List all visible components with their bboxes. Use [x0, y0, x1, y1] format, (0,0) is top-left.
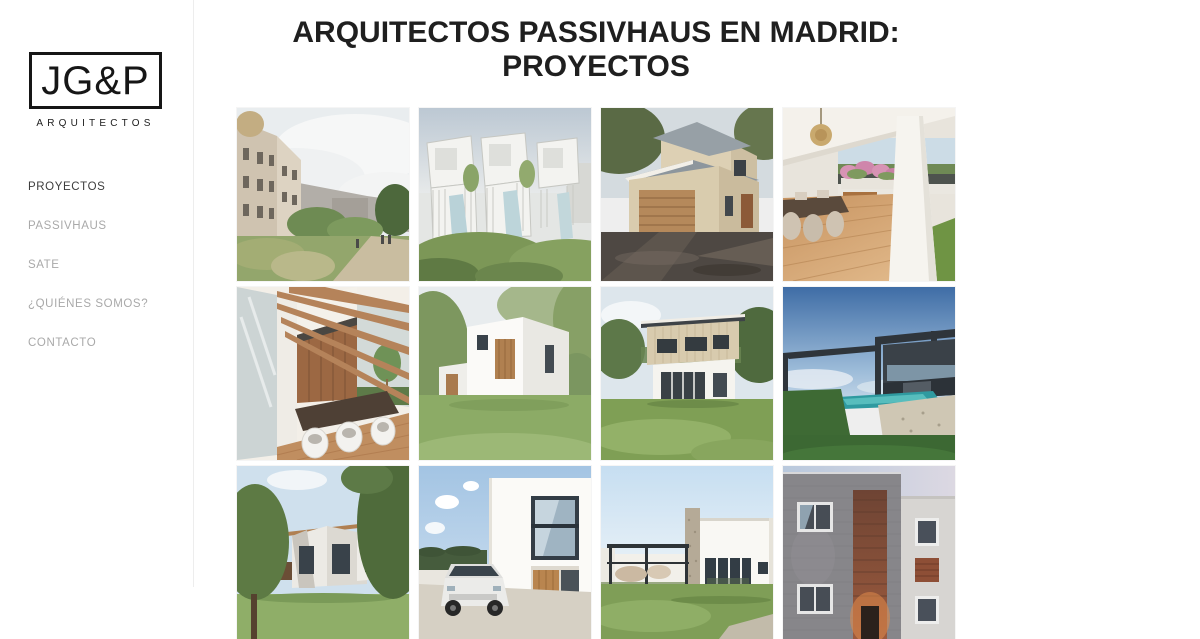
page-title-line1: ARQUITECTOS PASSIVHAUS EN MADRID: — [237, 16, 955, 50]
project-image-9 — [237, 466, 409, 639]
sidebar-item-quienes-somos[interactable]: ¿QUIÉNES SOMOS? — [28, 298, 193, 310]
project-image-12 — [783, 466, 955, 639]
project-thumbnail-1[interactable] — [237, 108, 409, 281]
project-thumbnail-4[interactable] — [783, 108, 955, 281]
logo-subtext: ARQUITECTOS — [29, 118, 162, 129]
project-thumbnail-8[interactable] — [783, 287, 955, 460]
sidebar-item-passivhaus[interactable]: PASSIVHAUS — [28, 220, 193, 232]
project-image-5 — [237, 287, 409, 460]
project-image-7 — [601, 287, 773, 460]
logo-text: JG&P — [41, 61, 149, 101]
sidebar: JG&P ARQUITECTOS PROYECTOS PASSIVHAUS SA… — [0, 0, 194, 587]
content: ARQUITECTOS PASSIVHAUS EN MADRID: PROYEC… — [237, 16, 955, 639]
project-thumbnail-7[interactable] — [601, 287, 773, 460]
project-thumbnail-3[interactable] — [601, 108, 773, 281]
project-thumbnail-6[interactable] — [419, 287, 591, 460]
projects-grid — [237, 108, 955, 639]
project-thumbnail-9[interactable] — [237, 466, 409, 639]
project-image-8 — [783, 287, 955, 460]
project-image-3 — [601, 108, 773, 281]
main-area: ARQUITECTOS PASSIVHAUS EN MADRID: PROYEC… — [194, 0, 1200, 587]
sidebar-nav: PROYECTOS PASSIVHAUS SATE ¿QUIÉNES SOMOS… — [0, 181, 193, 349]
project-thumbnail-5[interactable] — [237, 287, 409, 460]
sidebar-item-contacto[interactable]: CONTACTO — [28, 337, 193, 349]
sidebar-item-sate[interactable]: SATE — [28, 259, 193, 271]
page-title-line2: PROYECTOS — [237, 50, 955, 84]
project-image-4 — [783, 108, 955, 281]
project-thumbnail-10[interactable] — [419, 466, 591, 639]
project-image-1 — [237, 108, 409, 281]
page: JG&P ARQUITECTOS PROYECTOS PASSIVHAUS SA… — [0, 0, 1200, 587]
project-image-10 — [419, 466, 591, 639]
logo[interactable]: JG&P — [29, 52, 162, 109]
project-thumbnail-2[interactable] — [419, 108, 591, 281]
project-image-2 — [419, 108, 591, 281]
page-title: ARQUITECTOS PASSIVHAUS EN MADRID: PROYEC… — [237, 16, 955, 84]
sidebar-item-proyectos[interactable]: PROYECTOS — [28, 181, 193, 193]
project-image-11 — [601, 466, 773, 639]
project-thumbnail-12[interactable] — [783, 466, 955, 639]
project-image-6 — [419, 287, 591, 460]
project-thumbnail-11[interactable] — [601, 466, 773, 639]
